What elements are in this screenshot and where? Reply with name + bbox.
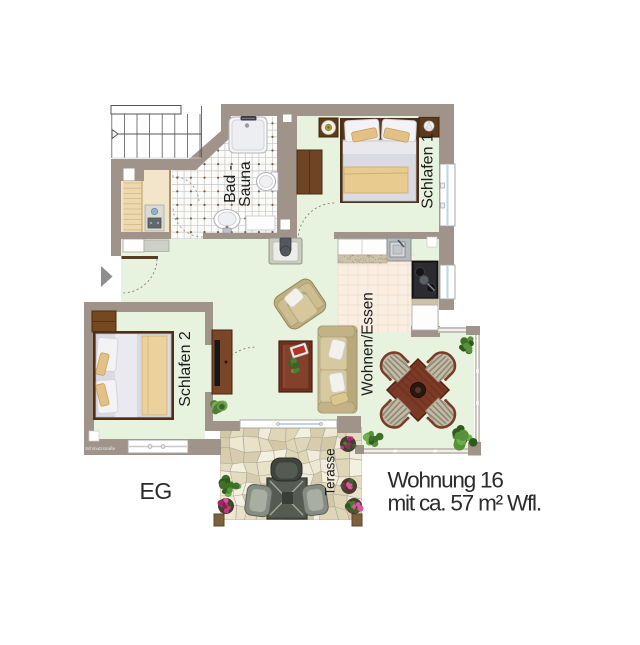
svg-text:Wohnen/Essen: Wohnen/Essen [360, 292, 377, 395]
svg-text:Sauna: Sauna [237, 161, 254, 207]
svg-text:Schlafen 1: Schlafen 1 [420, 133, 437, 209]
svg-text:mit ca. 57 m² Wfl.: mit ca. 57 m² Wfl. [388, 491, 541, 516]
svg-text:Wohnung 16: Wohnung 16 [388, 468, 504, 493]
svg-text:Terasse: Terasse [323, 448, 338, 495]
svg-text:Schlafen 2: Schlafen 2 [177, 331, 194, 407]
svg-text:EG: EG [140, 478, 172, 504]
svg-text:Schmutzstraße: Schmutzstraße [85, 446, 116, 451]
